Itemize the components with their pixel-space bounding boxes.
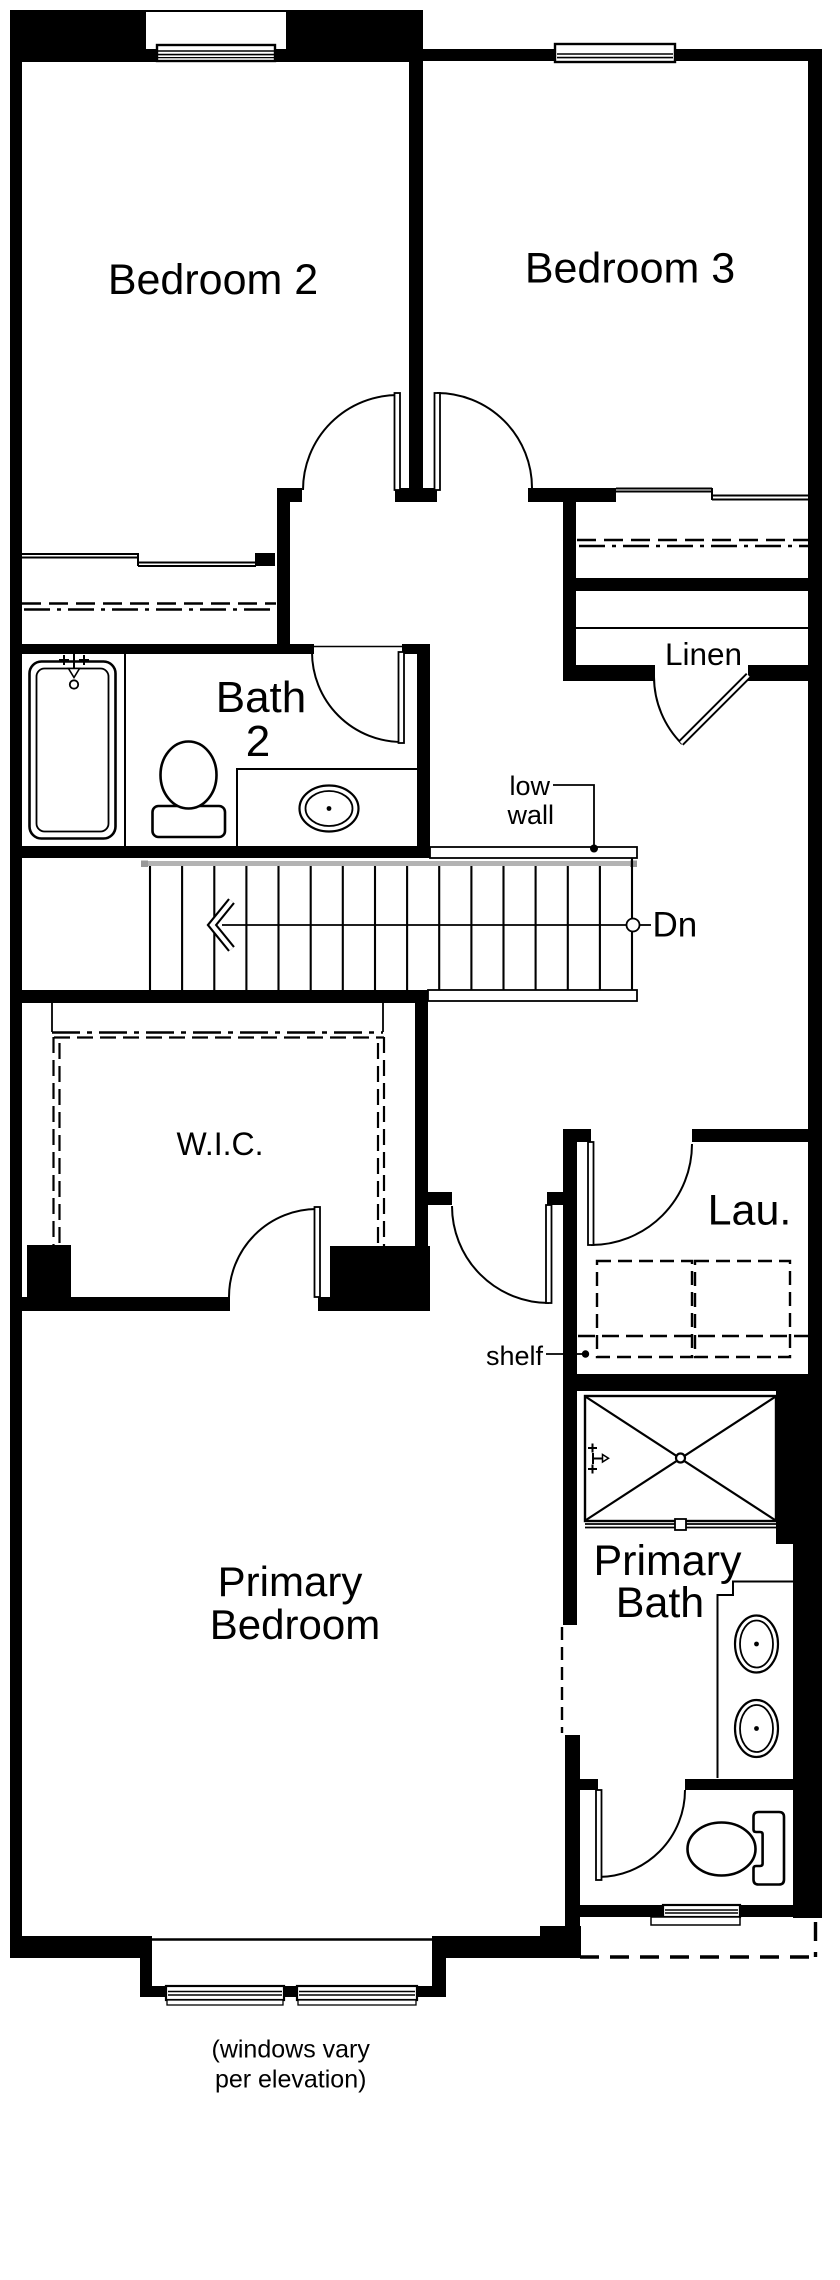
svg-text:Bedroom 3: Bedroom 3 [525,245,735,293]
svg-text:Dn: Dn [653,906,698,945]
svg-text:low: low [509,771,550,801]
svg-text:Bath: Bath [616,1579,704,1627]
svg-text:Lau.: Lau. [708,1187,792,1235]
svg-text:W.I.C.: W.I.C. [176,1126,263,1162]
svg-text:Bedroom 2: Bedroom 2 [108,256,318,304]
svg-text:Bedroom: Bedroom [210,1601,380,1648]
svg-text:2: 2 [246,717,270,766]
svg-text:(windows vary: (windows vary [212,2036,371,2064]
svg-text:shelf: shelf [486,1341,544,1371]
svg-text:wall: wall [506,800,554,830]
svg-text:Primary: Primary [593,1537,742,1585]
svg-text:Bath: Bath [216,673,307,722]
svg-text:Linen: Linen [665,636,742,672]
svg-text:Primary: Primary [218,1558,363,1605]
svg-text:per elevation): per elevation) [215,2066,366,2094]
